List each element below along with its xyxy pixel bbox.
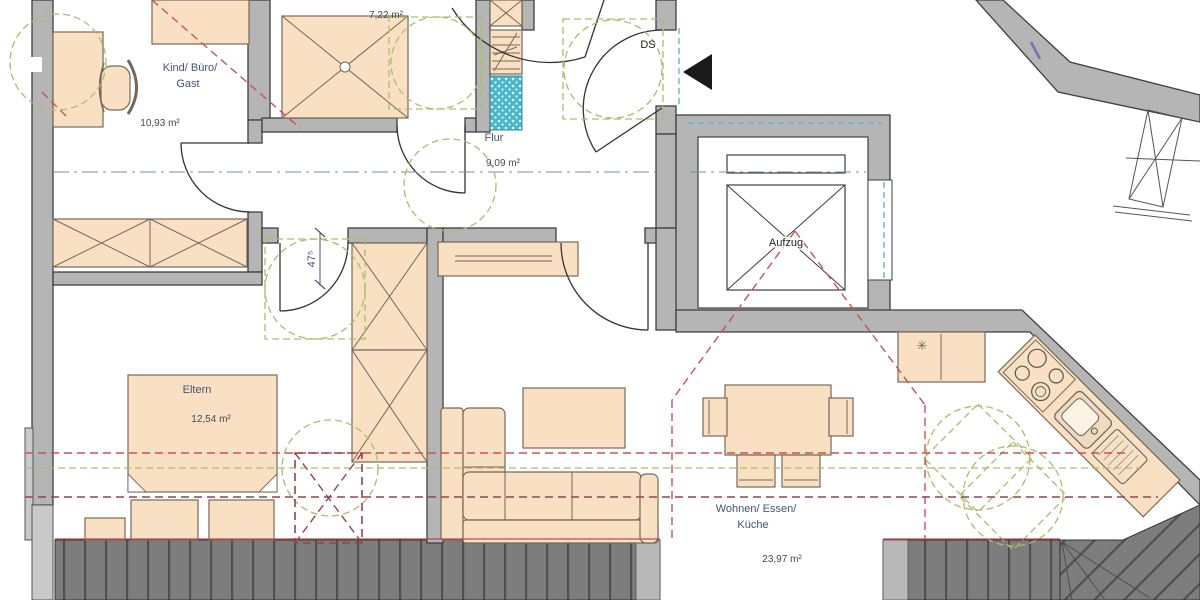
- bath-bottom-wall-left: [262, 118, 397, 132]
- door-kind: [181, 143, 250, 212]
- chair-left: [703, 398, 727, 436]
- kitchen-counter-diagonal: [998, 335, 1180, 517]
- elevator-label: Aufzug: [769, 237, 803, 249]
- bath-left-wall: [248, 0, 270, 120]
- flur-label: Flur: [485, 132, 504, 144]
- kind-bottom-wall: [53, 272, 262, 285]
- floor-plan: 47⁵ Kind/ Büro/ Gast 10,93 m² 7,22 m² Fl…: [0, 0, 1200, 600]
- bath-bottom-wall-right: [465, 118, 476, 132]
- wohnen-label-line1: Wohnen/ Essen/: [716, 503, 797, 515]
- entrance-arrow-icon: [683, 54, 712, 90]
- deck-left: [55, 540, 660, 600]
- cooktop-symbol: ✳: [917, 338, 928, 353]
- shower-drain: [340, 62, 350, 72]
- kind-area: 10,93 m²: [140, 118, 180, 129]
- tv-board: [523, 388, 625, 448]
- bed-foot-left: [131, 500, 198, 540]
- radiator-icon: [490, 30, 522, 74]
- eltern-top-wall-right: [348, 228, 427, 243]
- wohnen-label-line2: Küche: [737, 519, 768, 531]
- wardrobe-kind: [53, 219, 247, 267]
- dimension-door-width: 47⁵: [306, 228, 325, 289]
- kitchen-counter-top: [898, 332, 985, 382]
- chair-bottom-1: [737, 455, 775, 487]
- eltern-area: 12,54 m²: [191, 414, 231, 425]
- stair-structure: [1113, 110, 1200, 221]
- left-wall-bottom: [32, 505, 53, 600]
- skylight-marker: [295, 453, 362, 543]
- flur-south-wall: [443, 228, 556, 243]
- left-wall: [32, 0, 53, 505]
- kind-label-line2: Gast: [176, 78, 199, 90]
- bad-area: 7,22 m²: [369, 10, 404, 21]
- entrance-ds-label: DS: [640, 39, 655, 51]
- elevator-car-door: [727, 155, 845, 173]
- chair-bottom-2: [782, 455, 820, 487]
- deck-left-light-strip: [636, 540, 660, 600]
- bed: [128, 375, 277, 540]
- left-wall-window-gap: [30, 57, 42, 72]
- kind-label-line1: Kind/ Büro/: [163, 62, 218, 74]
- flur-area: 9,09 m²: [486, 158, 521, 169]
- sofa-back-left: [441, 408, 463, 540]
- corridor-wall-upper: [248, 120, 262, 143]
- dining-table: [725, 385, 831, 455]
- deck-right-light-strip: [883, 540, 908, 600]
- sofa-armrest: [640, 474, 658, 543]
- eltern-label: Eltern: [183, 384, 212, 396]
- sideboard: [438, 242, 578, 276]
- shower-floor-tiled: [490, 76, 522, 130]
- entrance-wall-top: [656, 0, 676, 30]
- dimension-label: 47⁵: [306, 251, 318, 268]
- desk: [53, 32, 103, 127]
- chair-right: [829, 398, 853, 436]
- sofa-seat-bottom: [463, 472, 641, 520]
- corridor-wall-stub: [248, 212, 262, 272]
- elevator-right-opening: [868, 180, 892, 280]
- desk-chair-seat: [101, 66, 130, 110]
- niche-right-wall: [522, 0, 534, 30]
- wohnen-area: 23,97 m²: [762, 554, 802, 565]
- door-bath: [397, 125, 465, 193]
- dining-set: [703, 385, 853, 487]
- washing-machine-icon: [490, 0, 522, 26]
- deck-right: [883, 540, 1060, 600]
- cupboard-top: [152, 0, 249, 44]
- entrance-wall-low: [656, 134, 676, 228]
- floor-plan-svg: 47⁵ Kind/ Büro/ Gast 10,93 m² 7,22 m² Fl…: [0, 0, 1200, 600]
- roof-edge-wall-topright: [976, 0, 1200, 122]
- bed-foot-right: [209, 500, 274, 540]
- low-cabinet: [85, 518, 125, 540]
